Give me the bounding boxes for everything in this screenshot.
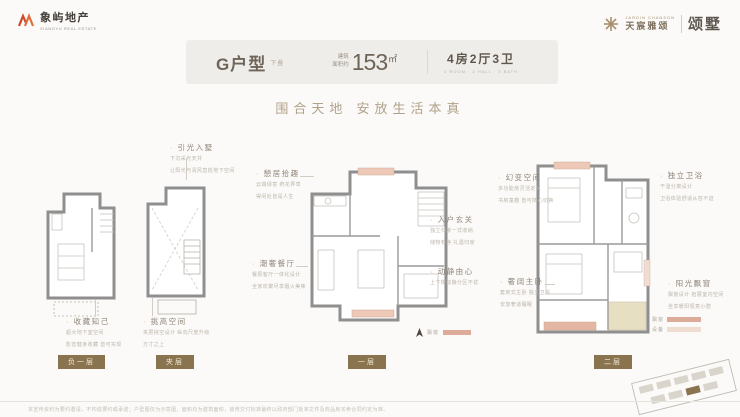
legend-label: 飘窗 <box>427 329 439 336</box>
annotation-line: 储物有序 礼遇归家 <box>430 239 475 248</box>
annotation-title: 阳光飘窗 <box>668 280 724 288</box>
annotation-line: 坐享暖阳惬意小憩 <box>668 303 724 312</box>
area-label-line1: 建筑 <box>332 54 349 62</box>
annotation-line: 上下楼动静分区不扰 <box>430 279 479 288</box>
brand-flower-icon <box>603 16 619 32</box>
annotation-master: 奢阔主卧 套房式主卧 独立卫浴 安放奢适睡眠 <box>500 278 550 309</box>
area-value: 153 <box>352 49 387 76</box>
rooms-count-sub: 4 ROOM · 2 HALL · 3 BATH <box>444 69 518 74</box>
annotation-line: 多功能房灵活定义 <box>498 185 554 194</box>
annotation-zoning: 动静由心 上下楼动静分区不扰 <box>430 268 479 288</box>
floorplan-basement <box>38 182 128 332</box>
annotation-line: 套房式主卧 独立卫浴 <box>500 289 550 298</box>
legend-label: 飘窗 <box>652 316 664 323</box>
annotation-title: 引光入墅 <box>170 144 235 152</box>
unit-type-tag: 下叠 <box>270 58 284 67</box>
annotation-loft: 挑高空间 夹层挑空设计 纵向尺度升级 方寸之上 <box>143 318 210 349</box>
project-brand: JARDIN CHANSON 天宸雅颂 颂墅 <box>603 13 722 34</box>
annotation-title: 入户玄关 <box>430 216 475 224</box>
developer-name-en: XIANGYU REAL ESTATE <box>40 26 97 31</box>
leader-line <box>300 176 314 177</box>
plan-legend-first-floor: 飘窗 <box>416 328 471 337</box>
annotation-title: 挑高空间 <box>143 318 210 326</box>
footer-divider <box>0 401 740 402</box>
annotation-line: 超大地下室空间 <box>66 329 122 338</box>
annotation-title: 憩居拾趣 <box>256 170 301 178</box>
disclaimer-text: 本宣传资料为要约邀请，不构成要约或承诺；户型图仅为示意图，面积均为建筑面积，装修… <box>28 406 628 413</box>
leader-line <box>95 300 96 316</box>
annotation-line: 独立归家一式收纳 <box>430 227 475 236</box>
annotation-dining: 潮奢餐厅 餐厨客厅一体化设计 全家欢聚尽享烟火美味 <box>252 260 306 291</box>
annotation-line: 方寸之上 <box>143 341 210 350</box>
annotation-line: 书房童趣 皆可随心切换 <box>498 197 554 206</box>
annotation-line: 卫浴体验舒适从容不迫 <box>660 195 714 204</box>
floor-badge-mezzanine: 夹层 <box>156 355 194 369</box>
unit-area: 建筑 面积约 153 ㎡ <box>332 49 397 76</box>
floor-badge-second-floor: 二层 <box>594 355 632 369</box>
annotation-title: 独立卫浴 <box>660 172 714 180</box>
annotation-title: 动静由心 <box>430 268 479 276</box>
floorplan-mezzanine <box>136 178 224 330</box>
brand-divider <box>681 15 682 33</box>
annotation-title: 收藏知己 <box>66 318 122 326</box>
floorplan-first-floor <box>298 158 466 340</box>
annotation-title: 潮奢餐厅 <box>252 260 306 268</box>
annotation-line: 餐厨客厅一体化设计 <box>252 271 306 280</box>
annotation-line: 飘窗设计 拓展室内空间 <box>668 291 724 300</box>
site-key-plan <box>629 355 740 417</box>
annotation-foyer: 入户玄关 独立归家一式收纳 储物有序 礼遇归家 <box>430 216 475 247</box>
brand-product-name: 颂墅 <box>688 13 722 34</box>
annotation-flex: 幻变空间 多功能房灵活定义 书房童趣 皆可随心切换 <box>498 174 554 205</box>
area-label-line2: 面积约 <box>332 62 349 70</box>
leader-line <box>152 298 153 316</box>
annotation-line: 让阳光与清风直抵地下空间 <box>170 167 235 176</box>
floor-badge-basement: 负一层 <box>58 355 105 369</box>
legend-swatch-equipment <box>667 327 701 332</box>
legend-swatch-bay-window <box>443 330 471 335</box>
annotation-line: 全家欢聚尽享烟火美味 <box>252 283 306 292</box>
developer-name: 象屿地产 <box>40 12 97 24</box>
slogan: 围合天地 安放生活本真 <box>0 98 740 117</box>
annotation-line: 影音健身收藏 皆可实现 <box>66 341 122 350</box>
annotation-line: 夹层挑空设计 纵向尺度升级 <box>143 329 210 338</box>
annotation-line: 得闲处皆是人生 <box>256 193 301 202</box>
developer-logo-icon <box>18 12 35 28</box>
unit-rooms: 4房2厅3卫 4 ROOM · 2 HALL · 3 BATH <box>444 50 518 74</box>
floor-badge-first-floor: 一层 <box>348 355 386 369</box>
legend-label: 设备 <box>652 326 664 333</box>
annotation-leisure: 憩居拾趣 云端绿意 莳花弄草 得闲处皆是人生 <box>256 170 301 201</box>
legend-swatch-bay-window <box>667 317 701 322</box>
annotation-line: 云端绿意 莳花弄草 <box>256 181 301 190</box>
rooms-count: 4房2厅3卫 <box>444 50 518 67</box>
annotation-title: 奢阔主卧 <box>500 278 550 286</box>
plan-legend-second-floor: 飘窗 设备 <box>652 316 701 336</box>
unit-info-band: G户型 下叠 建筑 面积约 153 ㎡ 4房2厅3卫 4 ROOM · 2 HA… <box>186 40 558 84</box>
unit-type: G户型 <box>216 50 266 75</box>
annotation-bath: 独立卫浴 干湿分离设计 卫浴体验舒适从容不迫 <box>660 172 714 203</box>
annotation-light: 引光入墅 下沉采光天井 让阳光与清风直抵地下空间 <box>170 144 235 175</box>
area-unit: ㎡ <box>388 52 397 65</box>
compass-icon <box>416 328 423 337</box>
band-divider <box>427 50 428 74</box>
annotation-collect: 收藏知己 超大地下室空间 影音健身收藏 皆可实现 <box>66 318 122 349</box>
annotation-line: 安放奢适睡眠 <box>500 301 550 310</box>
poster-canvas: 象屿地产 XIANGYU REAL ESTATE JARDIN CHANSON … <box>0 0 740 417</box>
annotation-title: 幻变空间 <box>498 174 554 182</box>
annotation-bay: 阳光飘窗 飘窗设计 拓展室内空间 坐享暖阳惬意小憩 <box>668 280 724 311</box>
developer-logo: 象屿地产 XIANGYU REAL ESTATE <box>18 12 97 31</box>
annotation-line: 下沉采光天井 <box>170 155 235 164</box>
brand-name-cn: 天宸雅颂 <box>625 21 675 32</box>
annotation-line: 干湿分离设计 <box>660 183 714 192</box>
